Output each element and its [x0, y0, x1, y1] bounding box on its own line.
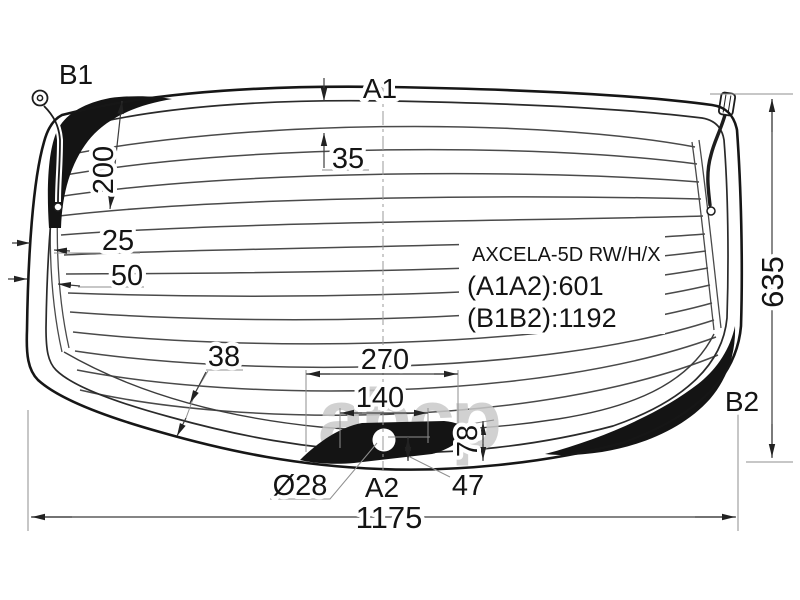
- dim-hole-diameter-label: Ø28: [273, 470, 328, 502]
- rear-window-diagram: abcp AXCELA-5D RW/H/X (A1A2):601 (B1B2):…: [0, 0, 800, 600]
- dim-1175-label: 1175: [356, 500, 423, 535]
- b1b2-length-label: (B1B2):1192: [467, 303, 617, 333]
- dimension-labels: 35 200 25 50 38 270 140 Ø28 47 78 635 11…: [88, 143, 790, 535]
- left-terminal: [33, 91, 63, 212]
- dim-270-label: 270: [361, 344, 409, 376]
- marker-b1-label: B1: [59, 59, 93, 90]
- dim-78-label: 78: [452, 425, 484, 457]
- right-terminal-wire: [708, 115, 725, 205]
- dim-47-label: 47: [452, 470, 484, 502]
- dim-50-label: 50: [111, 260, 143, 292]
- dim-25-label: 25: [102, 225, 134, 257]
- left-busbar-node: [54, 203, 62, 211]
- marker-a2-label: A2: [365, 472, 399, 503]
- dim-35-label: 35: [332, 143, 364, 175]
- part-info-block: AXCELA-5D RW/H/X (A1A2):601 (B1B2):1192: [459, 231, 665, 334]
- right-terminal: [707, 92, 736, 215]
- dim-140-label: 140: [356, 382, 404, 414]
- marker-a1-label: A1: [363, 73, 397, 104]
- wiper-hole: [373, 429, 396, 452]
- dim-38-label: 38: [208, 341, 240, 373]
- a1a2-length-label: (A1A2):601: [467, 271, 604, 301]
- part-number-label: AXCELA-5D RW/H/X: [472, 244, 661, 266]
- glass-drawing-page: abcp AXCELA-5D RW/H/X (A1A2):601 (B1B2):…: [0, 0, 800, 600]
- dim-200-label: 200: [88, 146, 120, 194]
- right-busbar-node: [707, 207, 715, 215]
- marker-b2-label: B2: [725, 386, 759, 417]
- dim-635-label: 635: [755, 256, 790, 308]
